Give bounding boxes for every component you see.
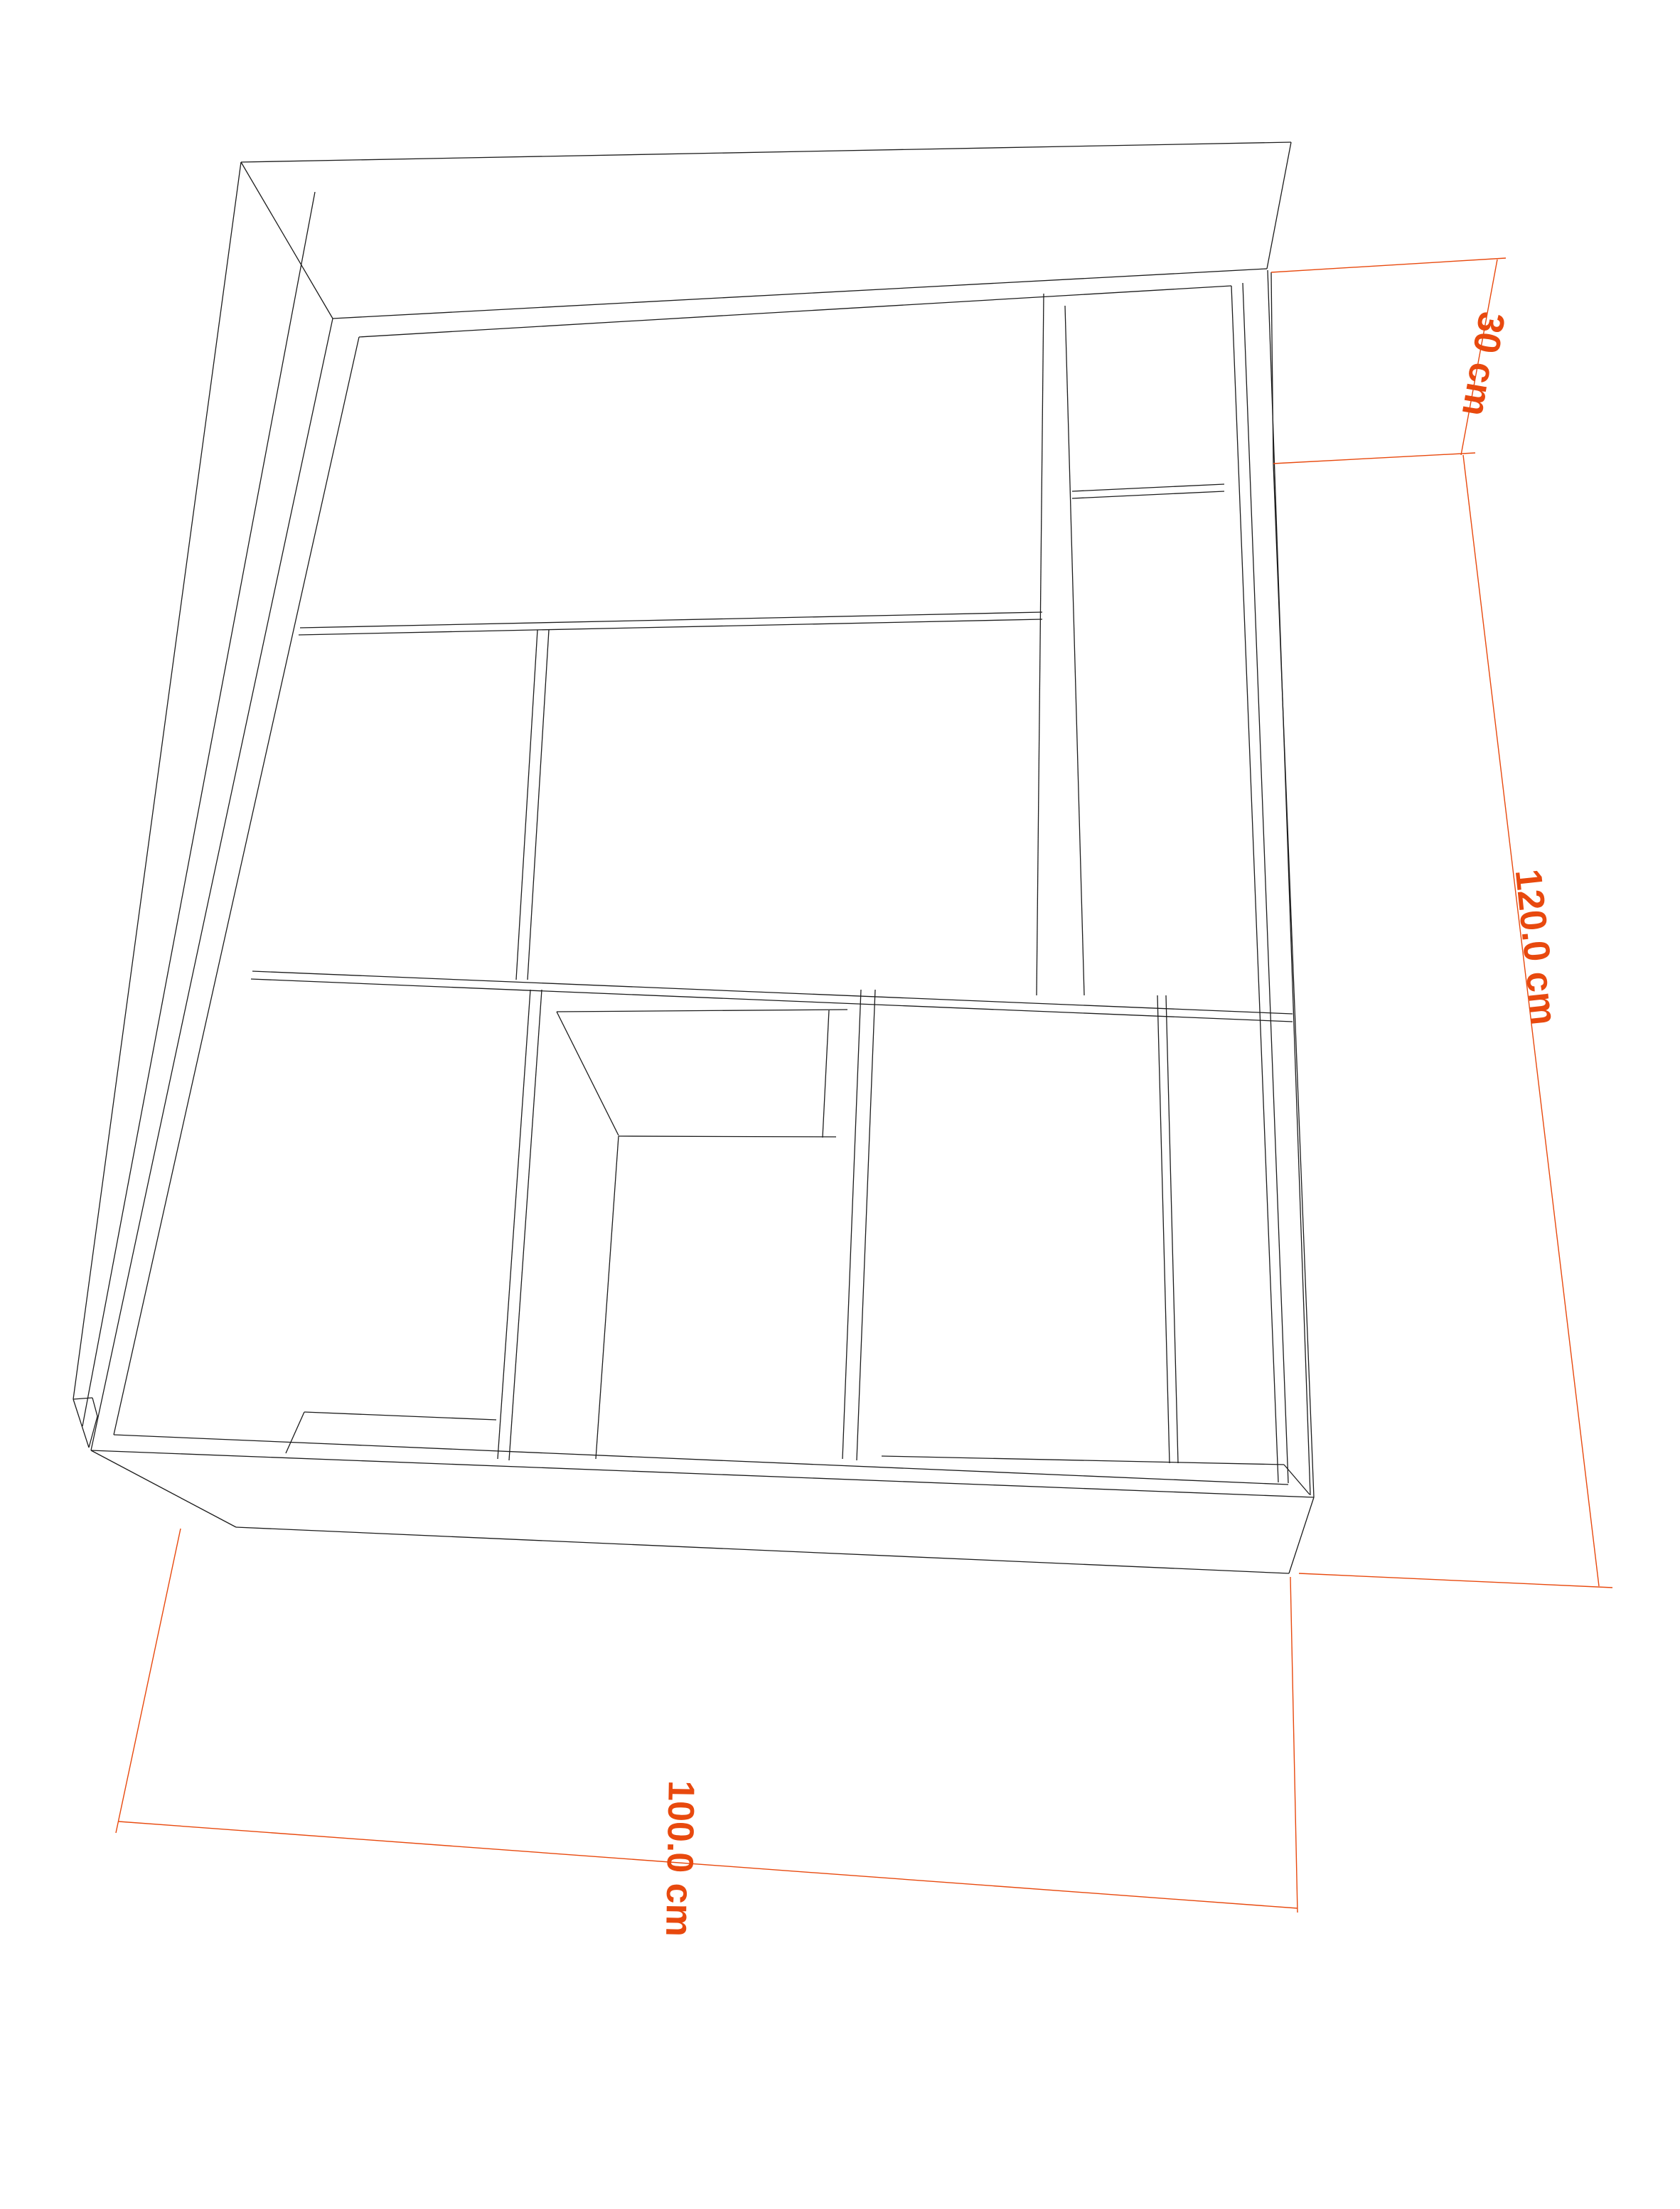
cabinet-edge-line bbox=[299, 619, 1042, 635]
cabinet-wireframe-drawing bbox=[0, 0, 1680, 2209]
cabinet-edge-line bbox=[304, 1412, 496, 1420]
cabinet-edge-line bbox=[91, 319, 333, 1450]
extension-line bbox=[1273, 453, 1475, 464]
cabinet-edge-line bbox=[1072, 491, 1224, 498]
cabinet-edge-line bbox=[92, 1398, 97, 1416]
cabinet-edge-line bbox=[882, 1456, 1284, 1465]
dimension-line bbox=[1461, 260, 1497, 455]
cabinet-edge-line bbox=[241, 142, 1291, 162]
extension-line bbox=[1271, 258, 1506, 272]
cabinet-edge-line bbox=[1267, 142, 1291, 269]
cabinet-edge-line bbox=[1289, 1497, 1314, 1573]
cabinet-edge-line bbox=[557, 1010, 847, 1012]
cabinet-edge-line bbox=[82, 192, 315, 1426]
cabinet-edge-line bbox=[596, 1136, 619, 1459]
cabinet-edge-line bbox=[89, 1416, 97, 1448]
cabinet-edge-line bbox=[91, 1450, 236, 1527]
cabinet-edge-line bbox=[857, 990, 875, 1460]
extension-line bbox=[1299, 1573, 1612, 1588]
cabinet-edge-line bbox=[1065, 306, 1084, 995]
cabinet-edge-line bbox=[1231, 286, 1278, 1482]
cabinet-edge-line bbox=[252, 971, 1293, 1014]
cabinet-edge-line bbox=[516, 630, 537, 980]
cabinet-edge-line bbox=[619, 1136, 836, 1137]
cabinet-edge-line bbox=[557, 1012, 619, 1135]
technical-drawing-page: 30 cm 120.0 cm 100.0 cm bbox=[0, 0, 1680, 2209]
cabinet-edge-line bbox=[286, 1412, 304, 1453]
cabinet-edge-line bbox=[1072, 484, 1224, 491]
cabinet-edge-line bbox=[236, 1527, 1289, 1573]
cabinet-edge-line bbox=[114, 337, 359, 1435]
cabinet-edge-line bbox=[251, 979, 1293, 1022]
dimension-line bbox=[1463, 455, 1599, 1586]
dimension-line bbox=[119, 1822, 1298, 1908]
cabinet-edge-line bbox=[842, 990, 861, 1459]
cabinet-edge-line bbox=[1037, 294, 1044, 995]
cabinet-edge-line bbox=[114, 1435, 1288, 1485]
cabinet-edge-line bbox=[241, 162, 333, 319]
cabinet-edge-line bbox=[1268, 270, 1310, 1495]
cabinet-edge-line bbox=[823, 1010, 829, 1138]
extension-line bbox=[1290, 1577, 1298, 1913]
cabinet-edge-line bbox=[300, 612, 1042, 628]
cabinet-edge-line bbox=[528, 630, 549, 980]
cabinet-edge-line bbox=[73, 1398, 92, 1399]
cabinet-edge-line bbox=[91, 1450, 1314, 1497]
cabinet-edge-line bbox=[73, 162, 241, 1399]
extension-line bbox=[116, 1529, 181, 1833]
